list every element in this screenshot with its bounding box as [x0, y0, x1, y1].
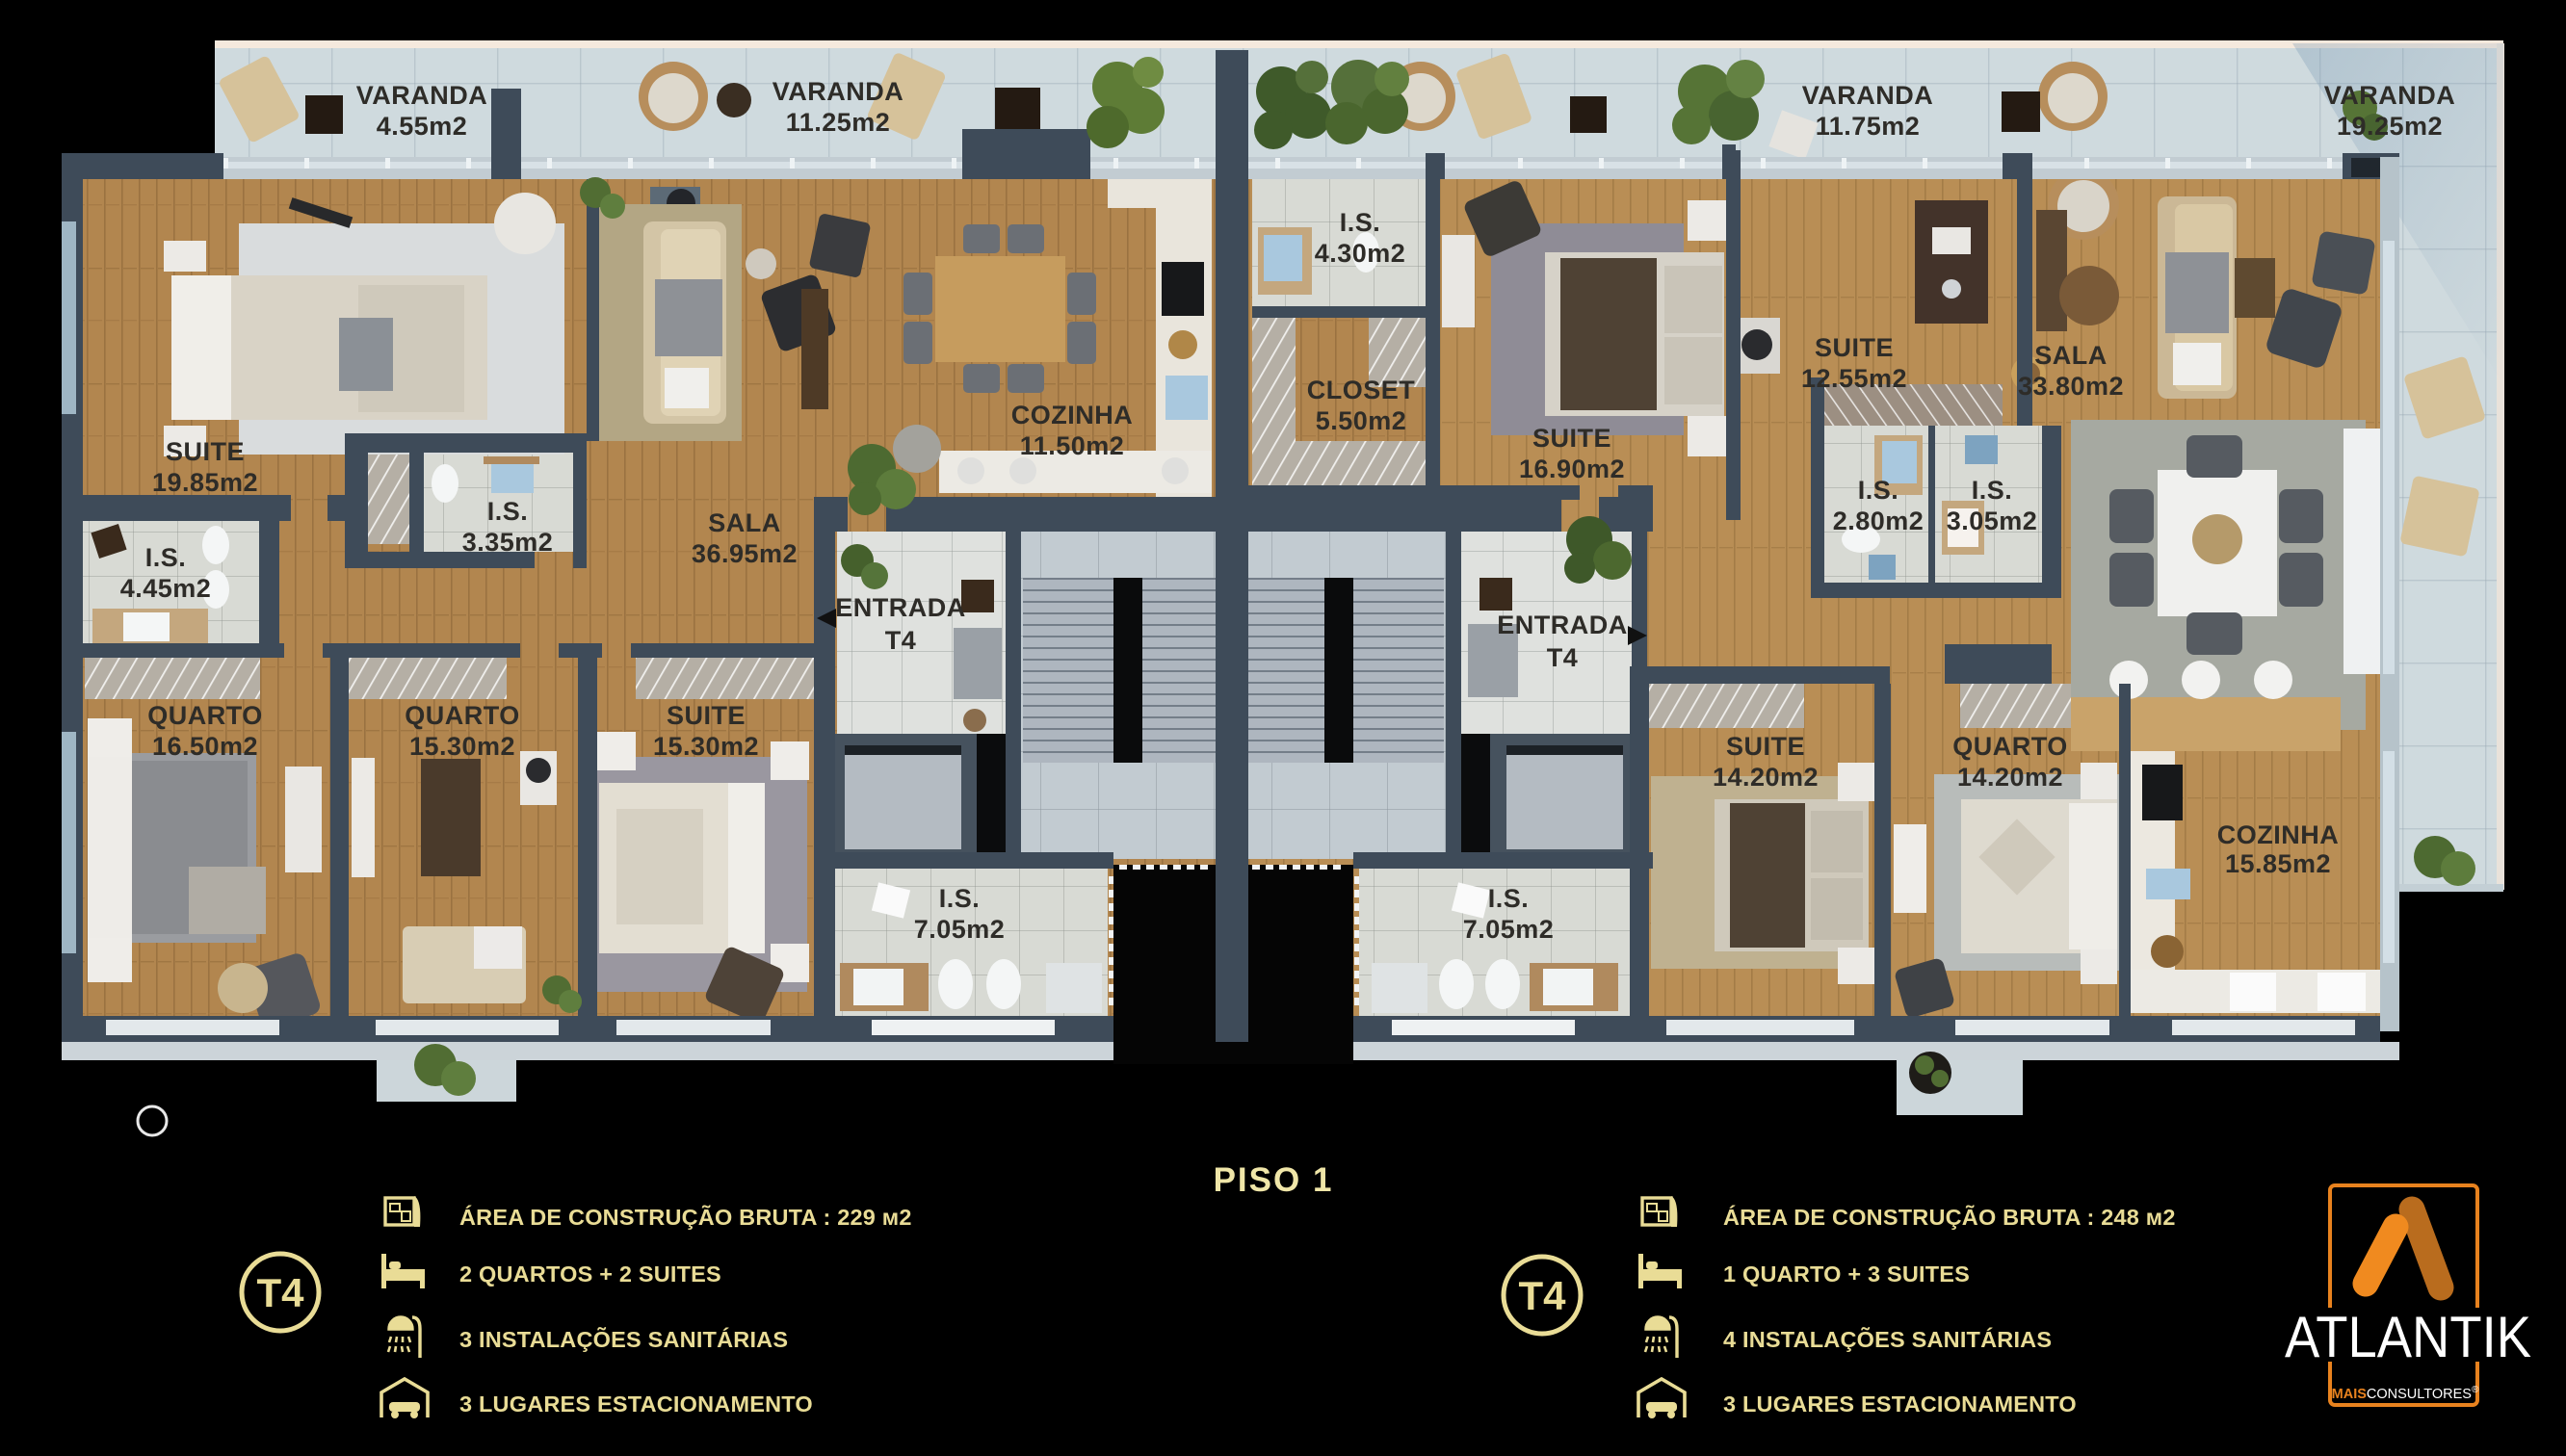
svg-text:I.S.: I.S.	[939, 884, 981, 913]
svg-text:1 QUARTO + 3 SUITES: 1 QUARTO + 3 SUITES	[1723, 1261, 1970, 1287]
svg-text:2.80m2: 2.80m2	[1833, 507, 1924, 535]
svg-text:14.20m2: 14.20m2	[1713, 763, 1819, 792]
svg-text:14.20m2: 14.20m2	[1957, 763, 2063, 792]
svg-text:7.05m2: 7.05m2	[914, 915, 1006, 944]
svg-text:PISO 1: PISO 1	[1214, 1161, 1334, 1199]
svg-text:VARANDA: VARANDA	[2324, 81, 2456, 110]
svg-text:3 INSTALAÇÕES SANITÁRIAS: 3 INSTALAÇÕES SANITÁRIAS	[459, 1326, 788, 1352]
svg-text:19.25m2: 19.25m2	[2337, 112, 2443, 141]
svg-text:T4: T4	[1547, 643, 1579, 672]
svg-text:I.S.: I.S.	[1340, 208, 1381, 237]
svg-text:QUARTO: QUARTO	[147, 701, 263, 730]
svg-text:T4: T4	[885, 626, 917, 655]
svg-text:3 LUGARES ESTACIONAMENTO: 3 LUGARES ESTACIONAMENTO	[1723, 1391, 2077, 1417]
svg-text:T4: T4	[256, 1270, 304, 1315]
svg-text:ENTRADA: ENTRADA	[835, 593, 966, 622]
svg-text:T4: T4	[1518, 1273, 1566, 1318]
svg-text:MAISCONSULTORES®: MAISCONSULTORES®	[2332, 1385, 2479, 1402]
svg-text:I.S.: I.S.	[487, 497, 529, 526]
svg-text:4.55m2: 4.55m2	[377, 112, 468, 141]
svg-text:CLOSET: CLOSET	[1307, 376, 1416, 404]
svg-text:SALA: SALA	[708, 508, 781, 537]
svg-text:I.S.: I.S.	[1858, 476, 1899, 505]
svg-text:2 QUARTOS + 2 SUITES: 2 QUARTOS + 2 SUITES	[459, 1261, 721, 1287]
svg-text:36.95m2: 36.95m2	[692, 539, 798, 568]
svg-text:11.50m2: 11.50m2	[1020, 431, 1125, 460]
svg-text:15.30m2: 15.30m2	[409, 732, 515, 761]
svg-text:ÁREA DE CONSTRUÇÃO BRUTA : 22: ÁREA DE CONSTRUÇÃO BRUTA : 229 м2	[459, 1204, 912, 1230]
svg-text:I.S.: I.S.	[1488, 884, 1530, 913]
svg-text:16.90m2: 16.90m2	[1519, 455, 1625, 483]
svg-text:ÁREA DE CONSTRUÇÃO BRUTA : 24: ÁREA DE CONSTRUÇÃO BRUTA : 248 м2	[1723, 1204, 2176, 1230]
svg-text:3.05m2: 3.05m2	[1947, 507, 2038, 535]
svg-text:11.75m2: 11.75m2	[1816, 112, 1921, 141]
svg-text:7.05m2: 7.05m2	[1463, 915, 1555, 944]
svg-text:VARANDA: VARANDA	[1802, 81, 1934, 110]
svg-text:VARANDA: VARANDA	[356, 81, 488, 110]
svg-text:VARANDA: VARANDA	[772, 77, 904, 106]
svg-text:16.50m2: 16.50m2	[152, 732, 258, 761]
svg-text:COZINHA: COZINHA	[2217, 820, 2340, 849]
svg-text:SUITE: SUITE	[1726, 732, 1805, 761]
svg-text:SUITE: SUITE	[1532, 424, 1611, 453]
svg-text:I.S.: I.S.	[145, 543, 187, 572]
svg-text:11.25m2: 11.25m2	[786, 108, 891, 137]
svg-text:15.30m2: 15.30m2	[653, 732, 759, 761]
svg-text:I.S.: I.S.	[1972, 476, 2013, 505]
svg-text:12.55m2: 12.55m2	[1801, 364, 1907, 393]
svg-text:4.45m2: 4.45m2	[120, 574, 212, 603]
svg-text:QUARTO: QUARTO	[405, 701, 520, 730]
svg-text:SALA: SALA	[2034, 341, 2108, 370]
svg-text:33.80m2: 33.80m2	[2018, 372, 2124, 401]
svg-text:4 INSTALAÇÕES SANITÁRIAS: 4 INSTALAÇÕES SANITÁRIAS	[1723, 1326, 2052, 1352]
svg-text:ENTRADA: ENTRADA	[1497, 611, 1628, 639]
svg-text:SUITE: SUITE	[1815, 333, 1894, 362]
svg-text:SUITE: SUITE	[667, 701, 746, 730]
svg-text:3 LUGARES ESTACIONAMENTO: 3 LUGARES ESTACIONAMENTO	[459, 1391, 813, 1417]
svg-text:5.50m2: 5.50m2	[1316, 406, 1407, 435]
svg-text:SUITE: SUITE	[166, 437, 245, 466]
svg-text:15.85m2: 15.85m2	[2225, 849, 2331, 878]
svg-text:4.30m2: 4.30m2	[1315, 239, 1406, 268]
svg-text:COZINHA: COZINHA	[1011, 401, 1134, 429]
svg-text:3.35m2: 3.35m2	[462, 528, 554, 557]
svg-text:QUARTO: QUARTO	[1952, 732, 2068, 761]
svg-text:19.85m2: 19.85m2	[152, 468, 258, 497]
svg-text:ATLANTIK: ATLANTIK	[2285, 1305, 2531, 1369]
